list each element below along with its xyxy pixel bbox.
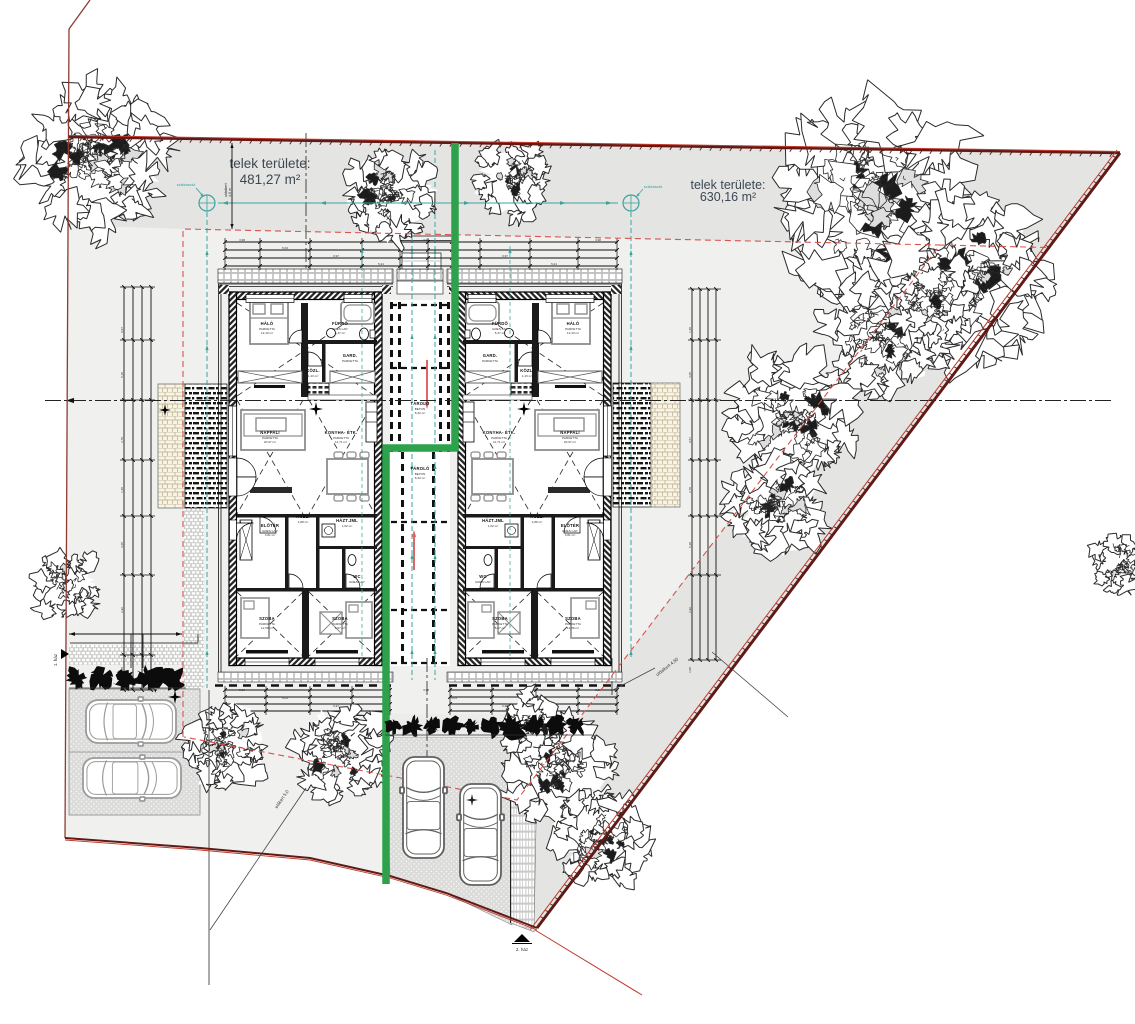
svg-text:NAPPALI: NAPPALI [260,430,279,435]
svg-text:5,18: 5,18 [120,372,124,378]
svg-text:3,81 m²: 3,81 m² [565,533,576,537]
svg-text:3,98: 3,98 [239,688,245,692]
svg-text:szikkasztó: szikkasztó [644,184,663,189]
svg-text:PARKETTA: PARKETTA [482,359,499,363]
svg-text:WC: WC [479,574,486,579]
svg-text:5,21: 5,21 [378,262,384,266]
svg-text:5,47 m²: 5,47 m² [495,331,506,335]
svg-text:HÁLÓ: HÁLÓ [567,321,580,326]
svg-text:8,42 m²: 8,42 m² [415,476,426,480]
svg-text:1,48: 1,48 [688,327,692,333]
svg-text:3,98: 3,98 [423,688,429,692]
svg-text:4,0 m: 4,0 m [228,188,232,197]
svg-text:HÁZT.JML: HÁZT.JML [482,518,504,523]
svg-text:HÁZT.JML: HÁZT.JML [336,518,358,523]
svg-text:3,81 m²: 3,81 m² [265,533,276,537]
svg-text:GARD.: GARD. [483,353,498,358]
svg-text:12,58 m²: 12,58 m² [567,626,579,630]
svg-text:ELŐTÉR: ELŐTÉR [261,523,279,528]
svg-text:9,57: 9,57 [120,327,124,333]
svg-text:WC: WC [353,574,360,579]
svg-text:11,71 m²: 11,71 m² [335,440,347,444]
svg-text:2. ház: 2. ház [516,947,529,952]
svg-text:telek területe:: telek területe: [229,156,310,171]
svg-text:SZOBA: SZOBA [565,616,581,621]
svg-text:20,97 m²: 20,97 m² [564,440,576,444]
svg-text:2,92: 2,92 [120,607,124,613]
svg-text:3,65: 3,65 [688,372,692,378]
svg-text:TÁROLÓ: TÁROLÓ [411,401,430,406]
svg-text:481,27 m²: 481,27 m² [240,172,301,187]
svg-text:SZOBA: SZOBA [259,616,275,621]
svg-text:5,03: 5,03 [282,246,288,250]
svg-text:630,16 m²: 630,16 m² [700,190,756,204]
svg-text:NAPPALI: NAPPALI [560,430,579,435]
svg-text:2,92: 2,92 [688,607,692,613]
svg-text:GRES LAP.: GRES LAP. [475,580,491,584]
svg-text:FÜRDŐ: FÜRDŐ [332,321,348,326]
svg-text:9,57: 9,57 [688,437,692,443]
svg-text:SZOBA: SZOBA [332,616,348,621]
svg-text:12,43 m²: 12,43 m² [567,331,579,335]
svg-text:SZOBA: SZOBA [492,616,508,621]
svg-text:1,43 m²: 1,43 m² [308,374,319,378]
svg-text:4,88 m²: 4,88 m² [532,520,543,524]
svg-text:szikkasztó: szikkasztó [177,182,196,187]
svg-text:8,67 m²: 8,67 m² [495,626,506,630]
svg-text:1,43 m²: 1,43 m² [522,374,533,378]
svg-text:3,98: 3,98 [239,238,245,242]
svg-text:1,48: 1,48 [120,487,124,493]
svg-text:GRES LAP.: GRES LAP. [349,580,365,584]
svg-text:11,71 m²: 11,71 m² [493,440,505,444]
svg-text:ELŐTÉR: ELŐTÉR [561,523,579,528]
svg-text:0,97: 0,97 [333,254,339,258]
svg-text:KÖZL.: KÖZL. [530,514,544,519]
svg-text:KÖZL.: KÖZL. [306,368,320,373]
svg-text:12,58 m²: 12,58 m² [261,626,273,630]
svg-text:0,97: 0,97 [502,254,508,258]
svg-text:HÁLÓ: HÁLÓ [261,321,274,326]
svg-text:5,03: 5,03 [282,696,288,700]
svg-text:12,43 m²: 12,43 m² [261,331,273,335]
svg-text:1,62 m²: 1,62 m² [488,524,499,528]
svg-text:3,65: 3,65 [120,542,124,548]
svg-text:1. ház: 1. ház [53,653,58,666]
svg-text:5,21: 5,21 [551,262,557,266]
svg-text:KÖZL.: KÖZL. [520,368,534,373]
svg-text:KÖZL.: KÖZL. [296,514,310,519]
svg-text:5,18: 5,18 [688,542,692,548]
svg-text:5,03: 5,03 [451,696,457,700]
svg-text:KONYHA- ÉTK.: KONYHA- ÉTK. [325,430,358,435]
svg-text:8,42 m²: 8,42 m² [415,411,426,415]
svg-text:2,78: 2,78 [120,437,124,443]
svg-text:4,88 m²: 4,88 m² [298,520,309,524]
svg-text:1,62 m²: 1,62 m² [342,524,353,528]
svg-text:1,08: 1,08 [688,667,692,673]
svg-text:8,67 m²: 8,67 m² [335,626,346,630]
svg-text:2,78: 2,78 [688,487,692,493]
svg-text:3,98: 3,98 [423,238,429,242]
svg-text:3,98: 3,98 [595,238,601,242]
svg-text:TÁROLÓ: TÁROLÓ [411,466,430,471]
svg-text:FÜRDŐ: FÜRDŐ [492,321,508,326]
svg-text:5,47 m²: 5,47 m² [335,331,346,335]
svg-text:PARKETTA: PARKETTA [342,359,359,363]
svg-text:GARD.: GARD. [343,353,358,358]
svg-text:0,97: 0,97 [333,704,339,708]
svg-text:20,97 m²: 20,97 m² [264,440,276,444]
